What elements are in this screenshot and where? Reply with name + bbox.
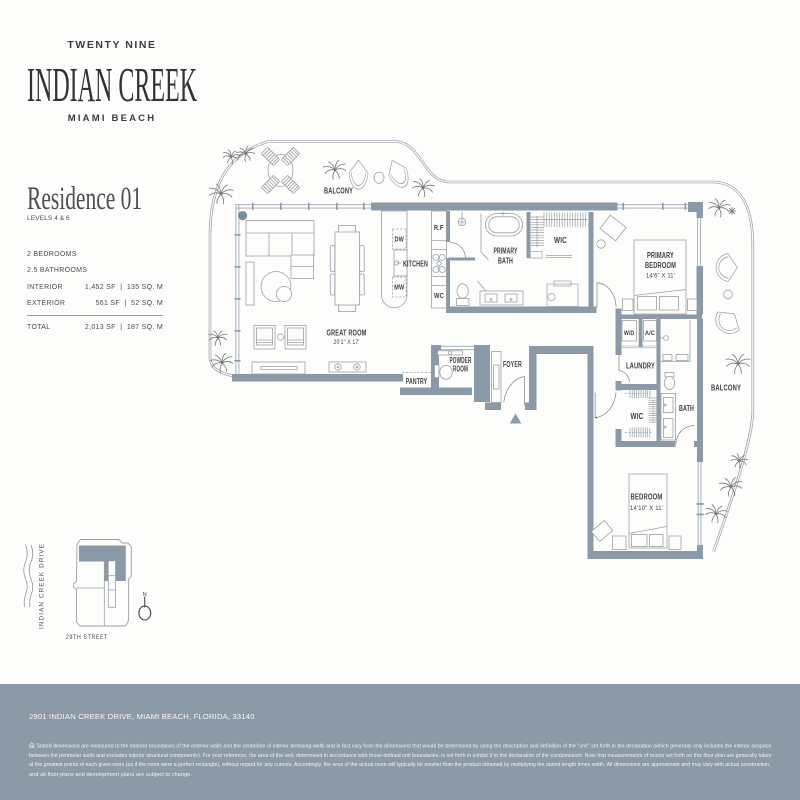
svg-text:MW: MW [394, 285, 404, 292]
svg-text:BALCONY: BALCONY [324, 187, 353, 196]
svg-text:BATH: BATH [498, 257, 513, 266]
svg-text:R.F: R.F [434, 225, 444, 232]
svg-text:WIC: WIC [631, 412, 644, 421]
svg-text:BATH: BATH [679, 404, 694, 413]
svg-text:20'1" X 17': 20'1" X 17' [334, 339, 360, 346]
svg-text:29TH STREET: 29TH STREET [66, 634, 108, 641]
svg-text:PRIMARY: PRIMARY [647, 251, 674, 260]
svg-text:WIC: WIC [554, 236, 567, 245]
svg-text:W/D: W/D [624, 330, 635, 337]
svg-text:PRIMARY: PRIMARY [494, 247, 518, 256]
svg-text:14'6" X 11': 14'6" X 11' [646, 273, 675, 280]
svg-text:14'10" X 11': 14'10" X 11' [630, 505, 663, 512]
svg-text:ROOM: ROOM [453, 365, 468, 374]
svg-text:DW: DW [395, 237, 405, 244]
svg-text:BEDROOM: BEDROOM [631, 493, 663, 502]
svg-text:KITCHEN: KITCHEN [403, 260, 428, 269]
svg-text:BALCONY: BALCONY [711, 384, 741, 393]
svg-text:A/C: A/C [645, 330, 655, 337]
svg-text:N: N [143, 592, 147, 598]
svg-text:LAUNDRY: LAUNDRY [626, 362, 655, 371]
svg-text:GREAT ROOM: GREAT ROOM [327, 329, 367, 338]
svg-text:WC: WC [434, 293, 444, 300]
svg-text:INDIAN CREEK DRIVE: INDIAN CREEK DRIVE [39, 543, 46, 629]
svg-text:BEDROOM: BEDROOM [645, 261, 676, 270]
svg-text:PANTRY: PANTRY [406, 377, 428, 386]
svg-text:FOYER: FOYER [503, 360, 522, 369]
